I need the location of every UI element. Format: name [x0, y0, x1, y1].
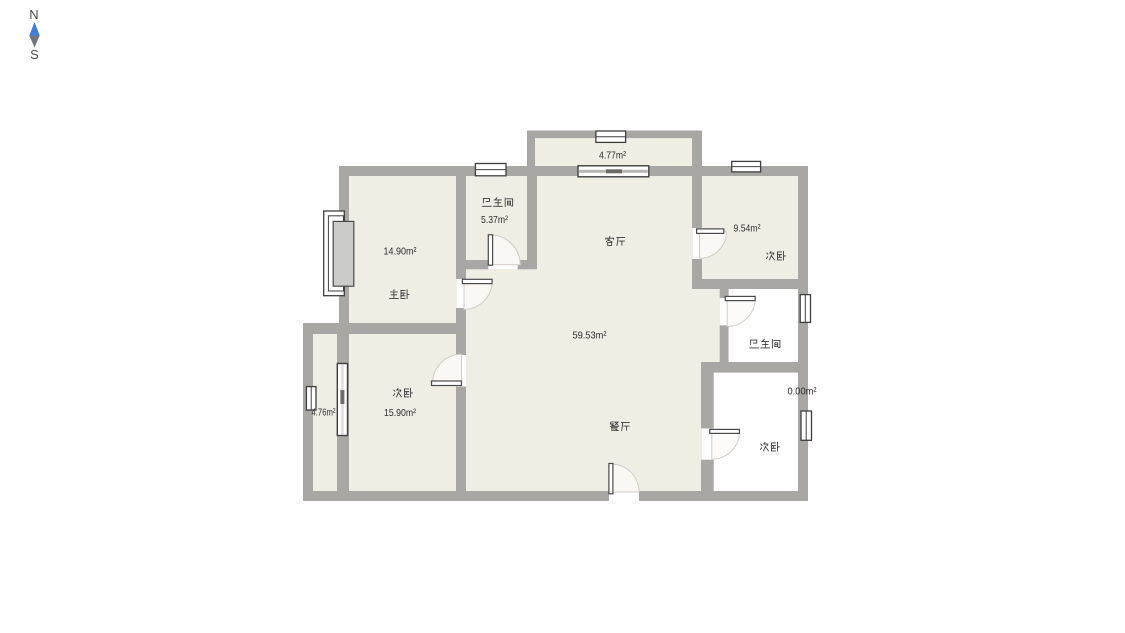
svg-text:4.76m²: 4.76m²	[312, 406, 336, 418]
svg-text:9.54m²: 9.54m²	[734, 222, 761, 234]
svg-text:4.77m²: 4.77m²	[599, 150, 626, 162]
svg-text:S: S	[30, 47, 39, 62]
svg-text:N: N	[29, 7, 38, 22]
svg-text:15.90m²: 15.90m²	[384, 407, 416, 419]
svg-text:59.53m²: 59.53m²	[573, 329, 607, 341]
svg-text:0.00m²: 0.00m²	[788, 385, 817, 397]
svg-text:5.37m²: 5.37m²	[481, 214, 508, 226]
svg-text:14.90m²: 14.90m²	[384, 245, 417, 257]
